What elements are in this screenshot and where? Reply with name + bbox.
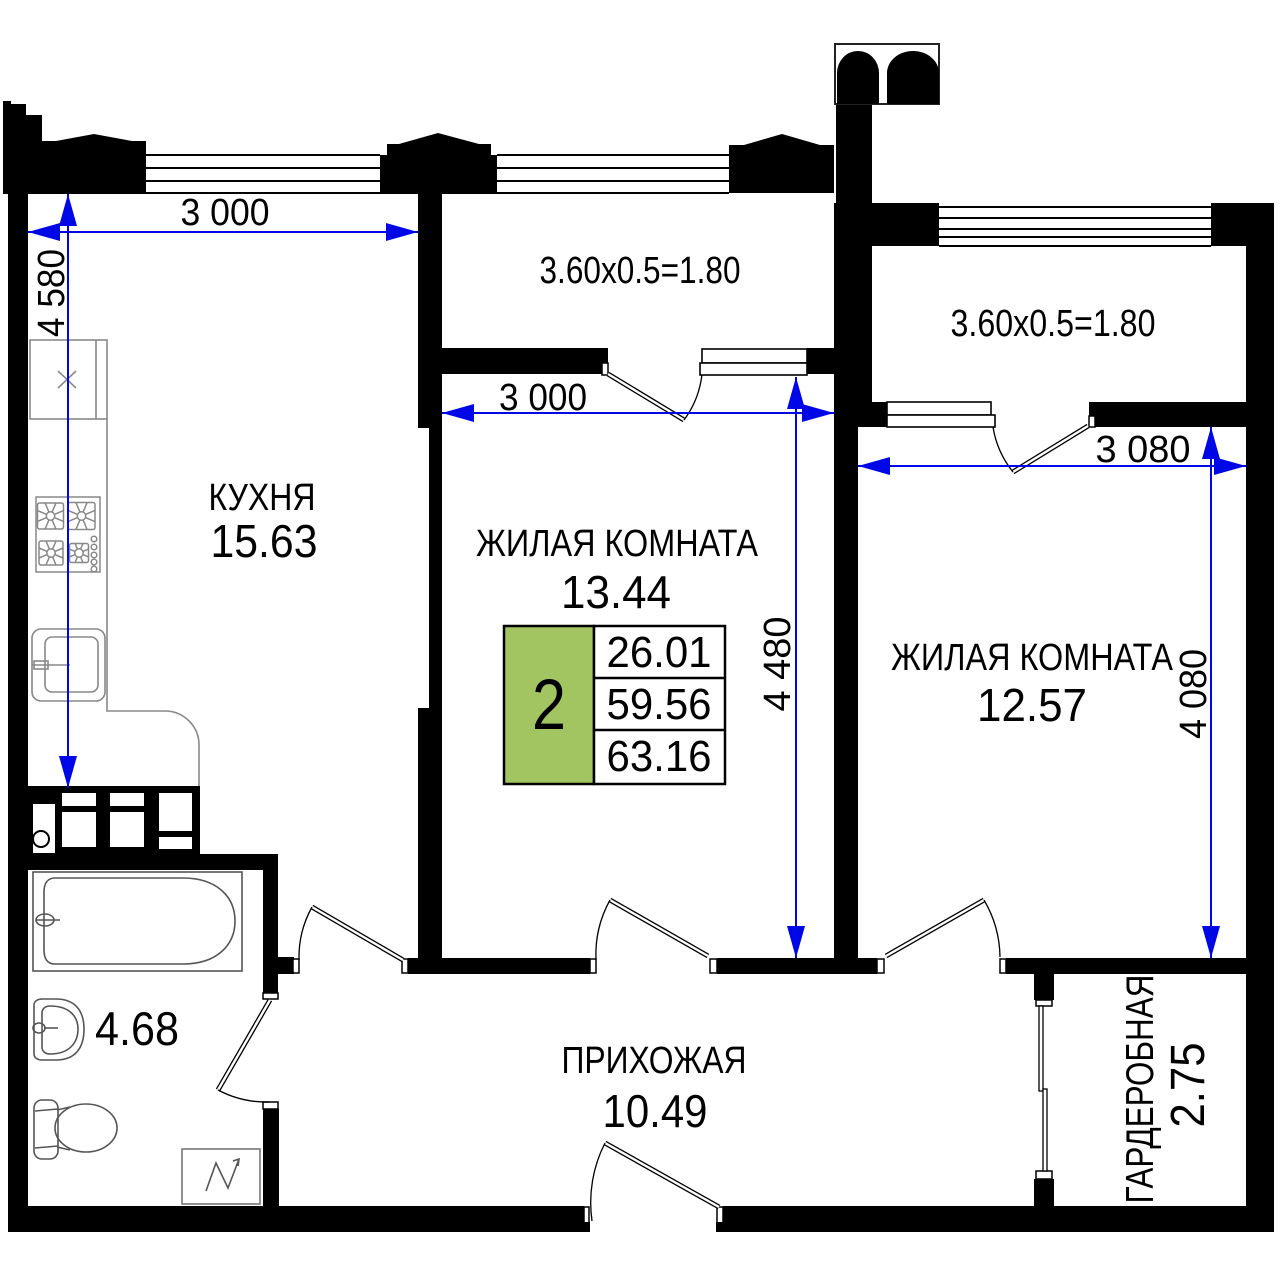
svg-text:59.56: 59.56: [607, 680, 712, 729]
svg-text:10.49: 10.49: [603, 1085, 708, 1137]
svg-text:13.44: 13.44: [561, 566, 671, 618]
svg-text:3 000: 3 000: [181, 192, 270, 234]
svg-text:3 000: 3 000: [499, 377, 587, 419]
svg-text:4 480: 4 480: [757, 617, 799, 712]
svg-text:ЖИЛАЯ КОМНАТА: ЖИЛАЯ КОМНАТА: [476, 523, 759, 565]
svg-text:3.60x0.5=1.80: 3.60x0.5=1.80: [951, 303, 1156, 345]
svg-text:ГАРДЕРОБНАЯ: ГАРДЕРОБНАЯ: [1119, 975, 1162, 1204]
svg-text:4.68: 4.68: [95, 1002, 179, 1055]
svg-text:3.60x0.5=1.80: 3.60x0.5=1.80: [540, 250, 741, 292]
svg-text:26.01: 26.01: [607, 628, 712, 677]
svg-text:12.57: 12.57: [977, 679, 1087, 731]
svg-text:КУХНЯ: КУХНЯ: [209, 477, 316, 519]
svg-text:63.16: 63.16: [607, 732, 712, 781]
svg-text:15.63: 15.63: [211, 515, 318, 567]
svg-text:ПРИХОЖАЯ: ПРИХОЖАЯ: [562, 1040, 747, 1082]
svg-text:2: 2: [532, 666, 566, 745]
svg-text:2.75: 2.75: [1162, 1043, 1215, 1128]
svg-text:3 080: 3 080: [1096, 429, 1191, 471]
svg-text:4 580: 4 580: [31, 249, 73, 337]
svg-text:4 080: 4 080: [1173, 649, 1215, 739]
svg-text:ЖИЛАЯ КОМНАТА: ЖИЛАЯ КОМНАТА: [891, 637, 1174, 679]
